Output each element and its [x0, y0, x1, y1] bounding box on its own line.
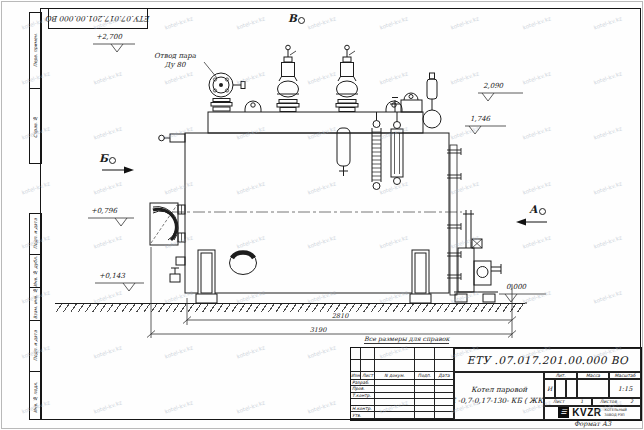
empty-cell: [415, 393, 435, 400]
company-subtitle: КОТЕЛЬНЫЙ ЗАВОД РЭП: [604, 408, 626, 417]
scale-header: Масштаб: [609, 372, 641, 379]
steam-outlet-label: Отвод пара Ду 80: [144, 52, 206, 70]
empty-cell: [415, 348, 435, 360]
sheets-cell: Листов 2: [592, 398, 641, 406]
manhole: [230, 252, 257, 275]
sheets-label: Листов: [600, 399, 617, 404]
sheets-value: 2: [630, 399, 633, 404]
lit-value: И: [544, 379, 555, 398]
empty-cell: [415, 412, 435, 419]
change-record-rows: [351, 348, 454, 372]
scale-value: 1:15: [609, 379, 641, 398]
lit-header: Лит.: [544, 372, 577, 379]
empty-cell: [435, 399, 454, 406]
row-prov: Пров.: [351, 386, 375, 393]
document-number: ЕТУ .07.017.201.00.000 ВО: [454, 348, 641, 372]
empty-cell: [415, 399, 435, 406]
signature-rows: Разраб. Пров. Т.контр. Н.контр. Утв.: [351, 380, 454, 421]
sheet-cell: Лист 1: [544, 398, 592, 406]
empty-cell: [555, 379, 566, 398]
row-razrab: Разраб.: [351, 380, 375, 387]
reference-note: Все размеры для справок: [364, 335, 449, 344]
col-data: Дата: [435, 372, 454, 380]
view-rotation-symbol: [109, 157, 116, 164]
row-nkontr: Н.контр.: [351, 406, 375, 413]
elevation-0000: 0,000: [506, 283, 526, 291]
elevation-2090: 2,090: [483, 82, 503, 90]
sheet-value: 1: [580, 399, 583, 404]
pressure-gauge: [390, 73, 441, 128]
safety-valve-1: [277, 45, 299, 111]
empty-cell: [361, 360, 375, 372]
mass-header: Масса: [577, 372, 609, 379]
drawing-sheet: ЕТУ.07.017.201.00.000 ВО Перв. примен. С…: [0, 0, 644, 430]
title-block: Изм Лист N докум. Подп. Дата Разраб. Про…: [350, 347, 642, 421]
empty-cell: [375, 399, 415, 406]
empty-cell: [351, 360, 361, 372]
elevation-1746: 1,746: [470, 115, 490, 123]
elevation-0143: +0,143: [99, 272, 125, 280]
dimension-3190: 3190: [296, 326, 340, 334]
empty-cell: [415, 380, 435, 387]
empty-cell: [435, 386, 454, 393]
company-logo-text: KVZR: [572, 407, 601, 418]
empty-cell: [435, 393, 454, 400]
empty-cell: [435, 412, 454, 419]
mass-value: [577, 379, 609, 398]
empty-cell: [375, 393, 415, 400]
empty-cell: [435, 360, 454, 372]
empty-cell: [375, 360, 415, 372]
view-label-a: А: [529, 203, 546, 215]
empty-cell: [435, 348, 454, 360]
view-label-b: Б: [99, 152, 116, 164]
steam-manifold: [208, 101, 423, 133]
steam-outlet-valve: [204, 62, 245, 111]
empty-cell: [361, 348, 375, 360]
format-note: Формат А3: [545, 420, 640, 428]
empty-cell: [375, 412, 415, 419]
company-logo-icon: ☰: [558, 407, 569, 418]
view-rotation-symbol: [539, 208, 546, 215]
empty-cell: [435, 380, 454, 387]
view-label-v: В: [288, 12, 305, 24]
empty-cell: [375, 380, 415, 387]
elevation-0796: +0,796: [91, 207, 117, 215]
col-doc: N докум.: [375, 372, 415, 380]
empty-cell: [415, 406, 435, 413]
empty-cell: [375, 406, 415, 413]
col-izm: Изм: [351, 372, 361, 380]
empty-cell: [375, 348, 415, 360]
water-level-gauges: [337, 112, 403, 190]
safety-valve-2: [336, 45, 358, 111]
dimension-2810: 2810: [318, 312, 362, 320]
empty-cell: [375, 386, 415, 393]
company-cell: ☰ KVZR КОТЕЛЬНЫЙ ЗАВОД РЭП: [544, 406, 641, 421]
elevation-2700: +2,700: [96, 33, 122, 41]
change-header-row: Изм Лист N докум. Подп. Дата: [351, 372, 454, 380]
empty-cell: [435, 406, 454, 413]
empty-cell: [351, 348, 361, 360]
col-list: Лист: [361, 372, 375, 380]
row-tkontr: Т.контр.: [351, 393, 375, 400]
empty-cell: [415, 360, 435, 372]
left-side-fittings: [150, 134, 185, 282]
product-name: Котел паровой: [471, 385, 527, 396]
product-name-cell: Котел паровой Е -0,7-0,17-130- КБ ( ЖК ): [454, 372, 544, 420]
row-blank: [351, 399, 375, 406]
empty-cell: [566, 379, 577, 398]
row-utv: Утв.: [351, 412, 375, 419]
empty-cell: [415, 386, 435, 393]
elevation-marks: [88, 44, 546, 302]
product-code: Е -0,7-0,17-130- КБ ( ЖК ): [454, 396, 544, 407]
col-podp: Подп.: [415, 372, 435, 380]
view-rotation-symbol: [298, 17, 305, 24]
sheet-label: Лист: [553, 399, 565, 404]
